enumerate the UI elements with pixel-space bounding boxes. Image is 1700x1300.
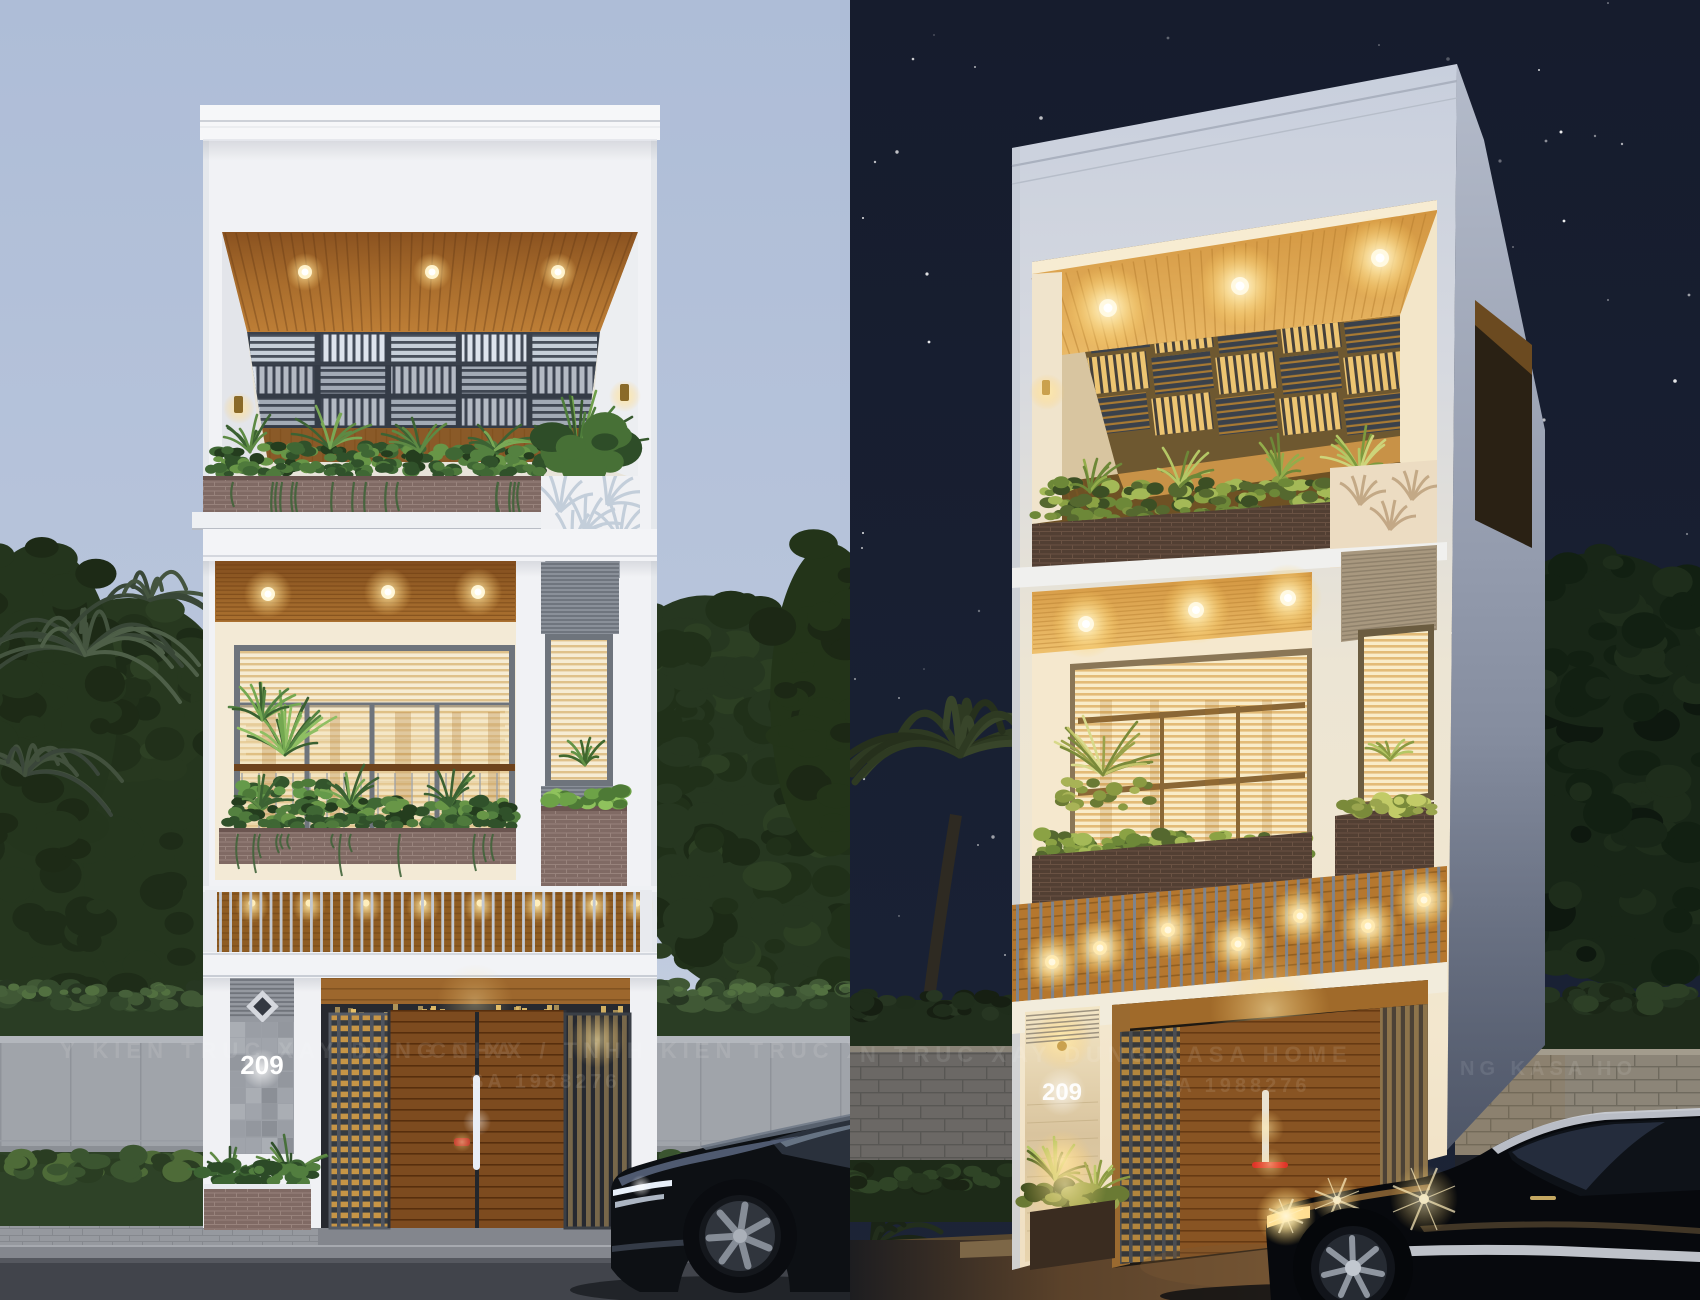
svg-text:N TRUC XAY DUNG KASA HOME: N TRUC XAY DUNG KASA HOME <box>860 1042 1353 1067</box>
svg-text:SA 1988276: SA 1988276 <box>470 1071 620 1093</box>
svg-text:NG KASA HO: NG KASA HO <box>1460 1058 1637 1080</box>
svg-text:SA 1988276: SA 1988276 <box>1160 1075 1310 1097</box>
